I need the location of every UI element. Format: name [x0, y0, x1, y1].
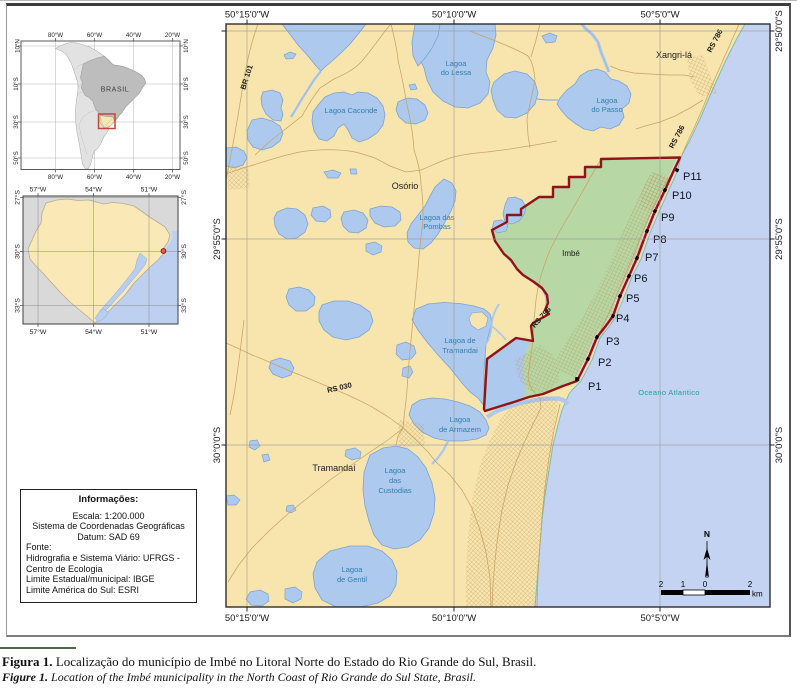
svg-text:P5: P5 — [626, 293, 639, 305]
svg-text:2: 2 — [748, 580, 753, 589]
svg-text:Lagoa: Lagoa — [342, 565, 364, 574]
svg-text:30°S: 30°S — [14, 244, 22, 259]
svg-text:30°S: 30°S — [180, 244, 188, 259]
svg-text:P3: P3 — [606, 336, 619, 348]
svg-text:50°10'0"W: 50°10'0"W — [432, 10, 476, 21]
svg-text:57°W: 57°W — [30, 186, 47, 194]
svg-text:33°S: 33°S — [14, 298, 22, 313]
svg-text:N: N — [704, 529, 710, 539]
svg-text:de Gentil: de Gentil — [337, 575, 367, 584]
svg-text:Lagoa Caconde: Lagoa Caconde — [325, 106, 378, 115]
svg-text:Imbé: Imbé — [562, 249, 580, 258]
svg-text:Osório: Osório — [392, 181, 419, 191]
svg-text:10°N: 10°N — [15, 39, 22, 53]
svg-text:1: 1 — [681, 580, 686, 589]
svg-text:Tramandai: Tramandai — [442, 346, 478, 355]
svg-text:P2: P2 — [598, 357, 611, 369]
svg-text:P1: P1 — [588, 381, 601, 393]
svg-text:29°55'0"S: 29°55'0"S — [212, 218, 223, 260]
svg-text:30°S: 30°S — [13, 115, 20, 128]
svg-text:30°0'0"S: 30°0'0"S — [774, 427, 785, 463]
svg-text:29°55'0"S: 29°55'0"S — [774, 218, 785, 260]
svg-text:50°S: 50°S — [183, 151, 190, 164]
svg-text:P9: P9 — [661, 212, 674, 224]
svg-text:Tramandaí: Tramandaí — [312, 463, 356, 473]
svg-text:50°5'0"W: 50°5'0"W — [640, 613, 679, 624]
svg-text:40°W: 40°W — [126, 32, 141, 39]
svg-text:de Armazem: de Armazem — [439, 425, 481, 434]
svg-text:50°5'0"W: 50°5'0"W — [640, 10, 679, 21]
svg-text:P6: P6 — [634, 273, 647, 285]
svg-text:10°S: 10°S — [13, 77, 20, 90]
svg-text:Lagoa das: Lagoa das — [419, 213, 454, 222]
svg-text:29°50'0"S: 29°50'0"S — [774, 10, 785, 52]
svg-text:P7: P7 — [645, 252, 658, 264]
svg-text:BRASIL: BRASIL — [101, 87, 130, 94]
svg-text:Lagoa: Lagoa — [446, 59, 468, 68]
svg-text:33°S: 33°S — [180, 298, 188, 313]
svg-text:0: 0 — [703, 580, 708, 589]
svg-text:54°W: 54°W — [85, 328, 102, 336]
svg-text:P4: P4 — [616, 313, 629, 325]
svg-text:P10: P10 — [672, 190, 692, 202]
svg-text:Custodias: Custodias — [378, 486, 412, 495]
svg-text:Lagoa: Lagoa — [597, 96, 619, 105]
svg-text:Pombas: Pombas — [423, 222, 451, 231]
svg-text:20°W: 20°W — [165, 32, 180, 39]
svg-text:30°0'0"S: 30°0'0"S — [212, 427, 223, 463]
svg-text:50°15'0"W: 50°15'0"W — [225, 10, 269, 21]
svg-text:das: das — [389, 476, 401, 485]
svg-text:Lagoa: Lagoa — [450, 415, 472, 424]
svg-text:10°N: 10°N — [183, 39, 190, 53]
svg-text:80°W: 80°W — [48, 174, 63, 181]
svg-text:50°10'0"W: 50°10'0"W — [432, 613, 476, 624]
svg-text:60°W: 60°W — [87, 174, 102, 181]
svg-text:2: 2 — [659, 580, 664, 589]
svg-text:27°S: 27°S — [14, 190, 22, 205]
svg-text:Xangri-lá: Xangri-lá — [656, 50, 692, 60]
svg-text:10°S: 10°S — [183, 77, 190, 90]
svg-text:do Lessa: do Lessa — [441, 68, 472, 77]
svg-text:Lagoa: Lagoa — [385, 466, 407, 475]
svg-text:50°S: 50°S — [13, 151, 20, 164]
svg-text:27°S: 27°S — [180, 190, 188, 205]
svg-text:60°W: 60°W — [87, 32, 102, 39]
svg-text:P11: P11 — [683, 171, 702, 183]
svg-text:20°W: 20°W — [165, 174, 180, 181]
svg-text:km: km — [752, 590, 763, 599]
svg-text:40°W: 40°W — [126, 174, 141, 181]
svg-text:Oceano Atlantico: Oceano Atlantico — [638, 388, 700, 397]
svg-text:51°W: 51°W — [141, 328, 158, 336]
svg-text:57°W: 57°W — [30, 328, 47, 336]
svg-text:80°W: 80°W — [48, 32, 63, 39]
svg-text:30°S: 30°S — [183, 115, 190, 128]
svg-text:do Passo: do Passo — [591, 105, 622, 114]
svg-text:Lagoa de: Lagoa de — [444, 336, 475, 345]
svg-text:50°15'0"W: 50°15'0"W — [225, 613, 269, 624]
svg-text:51°W: 51°W — [141, 186, 158, 194]
svg-text:54°W: 54°W — [85, 186, 102, 194]
